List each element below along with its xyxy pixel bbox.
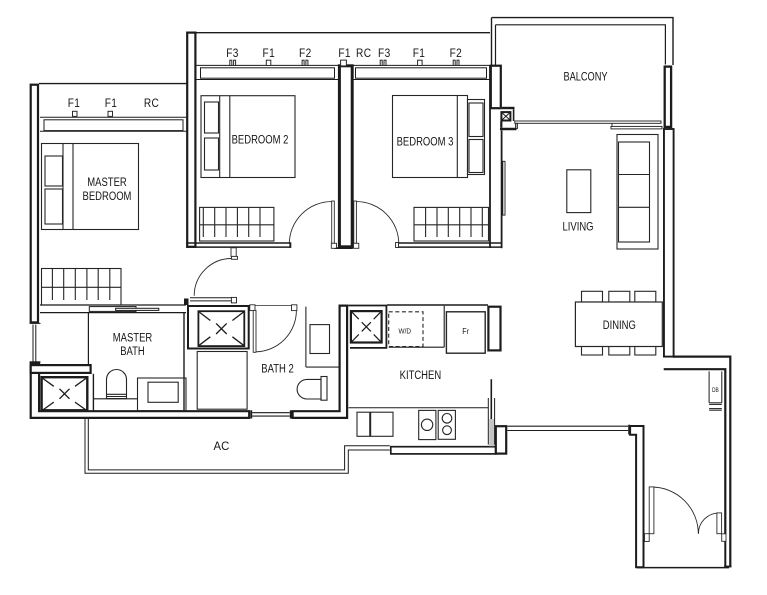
svg-text:BEDROOM 3: BEDROOM 3 — [397, 135, 454, 148]
svg-text:RC: RC — [144, 97, 159, 110]
svg-text:F1: F1 — [413, 47, 426, 60]
svg-text:LIVING: LIVING — [562, 221, 593, 234]
svg-text:AC: AC — [214, 439, 230, 454]
svg-text:RC: RC — [356, 47, 371, 60]
svg-text:Fr: Fr — [462, 327, 469, 336]
svg-text:F2: F2 — [299, 47, 312, 60]
svg-text:BEDROOM: BEDROOM — [83, 190, 132, 203]
svg-text:F1: F1 — [263, 47, 276, 60]
svg-text:BATH: BATH — [120, 345, 145, 358]
svg-text:BEDROOM 2: BEDROOM 2 — [232, 133, 289, 146]
svg-text:DINING: DINING — [603, 319, 636, 332]
svg-text:F1: F1 — [338, 47, 351, 60]
svg-text:W/D: W/D — [399, 328, 412, 335]
svg-text:F1: F1 — [68, 97, 81, 110]
svg-text:MASTER: MASTER — [113, 331, 153, 344]
svg-text:KITCHEN: KITCHEN — [400, 369, 442, 382]
svg-text:F3: F3 — [378, 47, 391, 60]
svg-text:F1: F1 — [105, 97, 118, 110]
svg-text:DB: DB — [712, 387, 719, 394]
svg-text:BATH 2: BATH 2 — [261, 362, 293, 375]
svg-text:F2: F2 — [450, 47, 463, 60]
svg-text:MASTER: MASTER — [87, 176, 127, 189]
svg-text:BALCONY: BALCONY — [563, 70, 607, 84]
svg-text:F3: F3 — [226, 47, 239, 60]
